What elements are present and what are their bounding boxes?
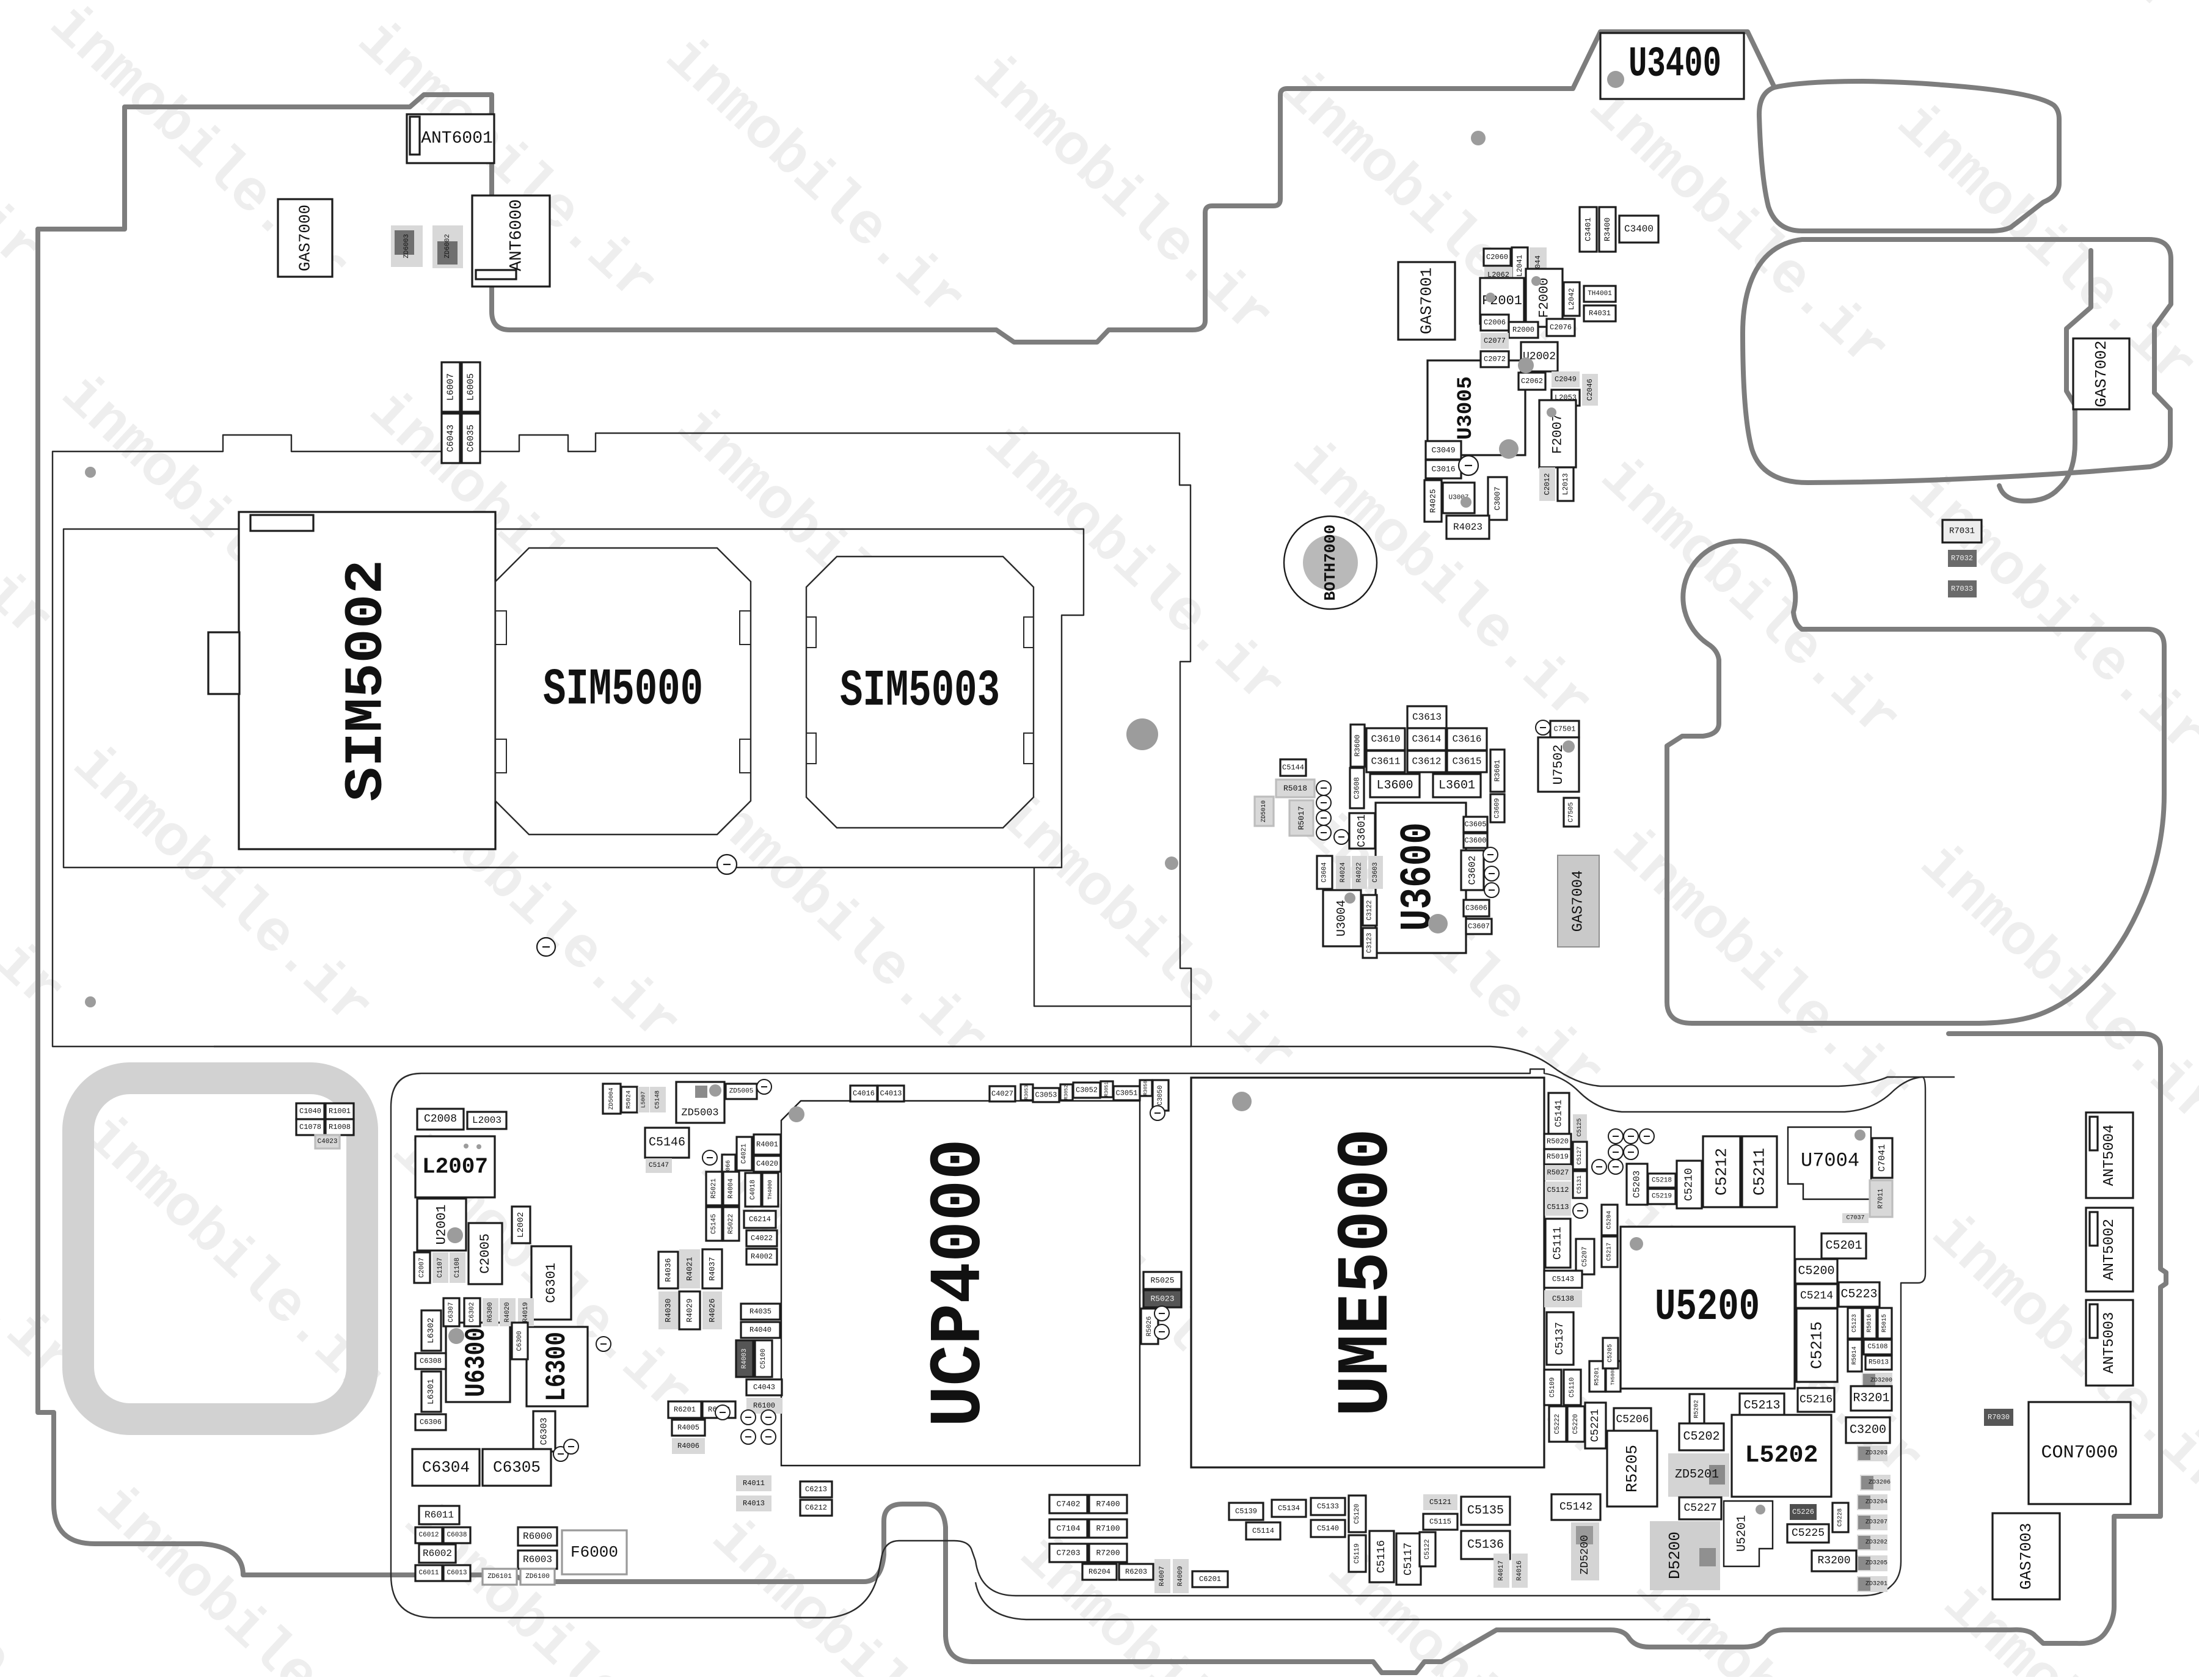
svg-text:C5125: C5125 <box>1577 1118 1583 1136</box>
svg-text:ZD6003: ZD6003 <box>403 234 410 258</box>
svg-text:ANT5002: ANT5002 <box>2101 1219 2118 1280</box>
svg-text:R5021: R5021 <box>710 1178 718 1199</box>
svg-text:C5217: C5217 <box>1606 1243 1613 1261</box>
svg-text:F6000: F6000 <box>571 1543 618 1561</box>
svg-text:C3016: C3016 <box>1431 465 1455 474</box>
svg-text:C5115: C5115 <box>1429 1517 1451 1526</box>
svg-text:GAS7000: GAS7000 <box>296 205 315 271</box>
svg-text:C3609: C3609 <box>1494 798 1501 818</box>
svg-text:ANT5004: ANT5004 <box>2101 1125 2118 1186</box>
svg-text:R4001: R4001 <box>756 1141 778 1149</box>
svg-text:SIM5003: SIM5003 <box>840 663 1000 721</box>
svg-text:C3050: C3050 <box>1157 1085 1164 1105</box>
svg-text:C5138: C5138 <box>1552 1295 1574 1303</box>
svg-text:R5013: R5013 <box>1869 1359 1889 1367</box>
svg-text:R4005: R4005 <box>677 1423 699 1432</box>
svg-text:R4022: R4022 <box>1356 862 1363 882</box>
svg-text:L2003: L2003 <box>472 1115 501 1126</box>
svg-text:R3200: R3200 <box>1817 1555 1850 1567</box>
svg-text:L6300: L6300 <box>541 1332 573 1401</box>
svg-text:U6300: U6300 <box>461 1328 492 1397</box>
svg-text:R4026: R4026 <box>708 1298 717 1322</box>
svg-text:ZD5004: ZD5004 <box>608 1087 615 1109</box>
svg-text:C4027: C4027 <box>991 1090 1013 1098</box>
svg-text:GAS7003: GAS7003 <box>2017 1523 2035 1590</box>
svg-text:C3052: C3052 <box>1076 1086 1098 1095</box>
svg-text:ZD5200: ZD5200 <box>1579 1535 1591 1575</box>
svg-text:R7031: R7031 <box>1949 527 1975 536</box>
svg-text:U3400: U3400 <box>1628 41 1721 89</box>
svg-text:C3601: C3601 <box>1356 814 1368 847</box>
svg-text:R4002: R4002 <box>751 1252 773 1261</box>
svg-text:C5113: C5113 <box>1547 1203 1569 1211</box>
svg-text:C3616: C3616 <box>1452 734 1481 745</box>
svg-text:C5223: C5223 <box>1840 1288 1877 1302</box>
svg-text:C3612: C3612 <box>1412 756 1441 767</box>
svg-text:C5201: C5201 <box>1825 1239 1862 1253</box>
svg-text:C5116: C5116 <box>1376 1540 1388 1573</box>
svg-text:C3614: C3614 <box>1412 734 1441 745</box>
svg-text:C5112: C5112 <box>1547 1186 1569 1194</box>
svg-text:C7041: C7041 <box>1877 1144 1887 1172</box>
svg-text:C4013: C4013 <box>880 1089 902 1098</box>
svg-text:C3400: C3400 <box>1624 224 1654 235</box>
svg-text:C6201: C6201 <box>1199 1575 1221 1583</box>
svg-text:C5119: C5119 <box>1354 1543 1361 1563</box>
svg-text:R1001: R1001 <box>329 1107 351 1116</box>
svg-text:SIM5002: SIM5002 <box>337 560 398 802</box>
svg-text:C5139: C5139 <box>1235 1507 1257 1516</box>
svg-text:C3611: C3611 <box>1371 756 1400 767</box>
svg-text:C4018: C4018 <box>749 1180 757 1200</box>
svg-text:C2049: C2049 <box>1555 375 1577 384</box>
svg-text:C6214: C6214 <box>749 1215 771 1224</box>
svg-text:R4019: R4019 <box>522 1302 530 1322</box>
svg-text:R4029: R4029 <box>685 1298 695 1322</box>
svg-text:U2001: U2001 <box>434 1204 450 1244</box>
svg-text:C2046: C2046 <box>1586 379 1594 401</box>
svg-text:R7400: R7400 <box>1096 1500 1120 1509</box>
svg-text:C3053: C3053 <box>1035 1091 1057 1100</box>
svg-text:R3400: R3400 <box>1603 217 1612 241</box>
svg-text:C3608: C3608 <box>1353 777 1362 799</box>
svg-text:R7030: R7030 <box>1988 1413 2010 1422</box>
svg-text:C7203: C7203 <box>1056 1549 1080 1558</box>
svg-text:C5142: C5142 <box>1559 1501 1592 1513</box>
svg-text:C3049: C3049 <box>1431 446 1455 455</box>
svg-text:R4007: R4007 <box>1159 1566 1166 1586</box>
svg-text:C5100: C5100 <box>760 1348 767 1368</box>
svg-text:C5120: C5120 <box>1354 1503 1361 1524</box>
svg-text:ZD5003: ZD5003 <box>681 1108 718 1119</box>
svg-text:ANT6001: ANT6001 <box>421 130 493 148</box>
svg-text:R4035: R4035 <box>749 1307 771 1316</box>
svg-text:C5219: C5219 <box>1652 1193 1672 1200</box>
svg-text:C6013: C6013 <box>447 1569 467 1577</box>
svg-text:C7037: C7037 <box>1846 1215 1864 1222</box>
svg-text:C5146: C5146 <box>649 1136 685 1150</box>
svg-text:C4023: C4023 <box>317 1138 337 1145</box>
svg-text:C5200: C5200 <box>1798 1265 1834 1279</box>
svg-text:ZD5005: ZD5005 <box>729 1088 754 1095</box>
svg-text:C6011: C6011 <box>418 1569 439 1577</box>
svg-text:C5222: C5222 <box>1554 1414 1561 1434</box>
svg-text:ANT5003: ANT5003 <box>2101 1312 2118 1374</box>
svg-text:C5111: C5111 <box>1552 1227 1564 1260</box>
svg-text:C5203: C5203 <box>1632 1171 1643 1198</box>
svg-text:L2042: L2042 <box>1567 288 1576 310</box>
svg-text:C1108: C1108 <box>454 1257 461 1277</box>
svg-text:C3603: C3603 <box>1372 862 1379 882</box>
svg-text:C3613: C3613 <box>1412 712 1442 723</box>
svg-text:C7104: C7104 <box>1056 1524 1080 1533</box>
svg-text:R3052: R3052 <box>1064 1085 1070 1100</box>
svg-text:C5134: C5134 <box>1278 1504 1300 1513</box>
svg-text:C5227: C5227 <box>1683 1502 1716 1514</box>
svg-text:R4021: R4021 <box>685 1257 695 1280</box>
svg-text:C5136: C5136 <box>1467 1538 1504 1552</box>
svg-text:R4023: R4023 <box>1453 522 1482 533</box>
svg-text:R6204: R6204 <box>1089 1568 1110 1576</box>
svg-text:C3122: C3122 <box>1366 900 1374 920</box>
svg-text:C6043: C6043 <box>446 425 456 452</box>
svg-text:C2062: C2062 <box>1521 377 1543 385</box>
svg-text:L2002: L2002 <box>516 1212 526 1238</box>
svg-text:C5220: C5220 <box>1572 1414 1580 1434</box>
svg-text:R6203: R6203 <box>1125 1568 1147 1576</box>
svg-text:U5200: U5200 <box>1655 1282 1760 1332</box>
svg-text:R5201: R5201 <box>1594 1367 1601 1386</box>
svg-text:C3401: C3401 <box>1584 217 1593 241</box>
svg-text:L2041: L2041 <box>1515 255 1524 277</box>
svg-text:C4021: C4021 <box>741 1144 748 1164</box>
svg-text:R5025: R5025 <box>1150 1276 1174 1285</box>
svg-text:C4043: C4043 <box>753 1383 775 1392</box>
svg-text:C3200: C3200 <box>1850 1423 1886 1437</box>
svg-text:ZD3207: ZD3207 <box>1865 1519 1887 1526</box>
svg-text:C5133: C5133 <box>1317 1502 1339 1511</box>
svg-text:L6301: L6301 <box>426 1379 436 1404</box>
svg-text:C1107: C1107 <box>437 1257 444 1277</box>
svg-text:ZD3206: ZD3206 <box>1869 1480 1891 1486</box>
svg-text:C5215: C5215 <box>1808 1321 1826 1369</box>
svg-text:R5202: R5202 <box>1694 1400 1701 1418</box>
svg-text:R7032: R7032 <box>1951 554 1973 563</box>
svg-text:C5141: C5141 <box>1554 1100 1564 1127</box>
svg-text:GAS7001: GAS7001 <box>1418 268 1436 334</box>
svg-text:R5023: R5023 <box>1150 1295 1174 1304</box>
svg-text:C6012: C6012 <box>418 1532 439 1539</box>
svg-text:U3004: U3004 <box>1335 900 1349 937</box>
svg-text:R4025: R4025 <box>1429 489 1438 513</box>
svg-text:C3604: C3604 <box>1321 862 1329 882</box>
svg-text:F2007: F2007 <box>1550 414 1566 454</box>
svg-text:R4036: R4036 <box>664 1258 673 1282</box>
svg-text:R6002: R6002 <box>423 1548 452 1559</box>
svg-text:C5228: C5228 <box>1837 1508 1844 1527</box>
svg-text:C4016: C4016 <box>853 1089 875 1098</box>
svg-text:C5205: C5205 <box>1607 1344 1614 1362</box>
svg-text:C6302: C6302 <box>469 1302 476 1322</box>
svg-text:C5207: C5207 <box>1581 1246 1589 1266</box>
svg-text:L2013: L2013 <box>1561 473 1570 495</box>
svg-text:R6011: R6011 <box>425 1510 454 1521</box>
svg-text:U7502: U7502 <box>1551 744 1566 784</box>
svg-text:R7033: R7033 <box>1951 585 1973 593</box>
svg-text:R2000: R2000 <box>1512 326 1534 334</box>
svg-text:ANT6000: ANT6000 <box>508 199 527 271</box>
svg-text:R4030: R4030 <box>664 1298 673 1322</box>
svg-text:C5226: C5226 <box>1792 1508 1814 1516</box>
svg-text:R7100: R7100 <box>1096 1524 1120 1533</box>
svg-text:R4040: R4040 <box>749 1326 771 1334</box>
svg-text:R6100: R6100 <box>753 1401 775 1410</box>
svg-text:C1078: C1078 <box>299 1123 321 1131</box>
svg-text:R4017: R4017 <box>1498 1560 1505 1580</box>
svg-text:C2006: C2006 <box>1484 318 1506 327</box>
svg-text:R4037: R4037 <box>708 1257 717 1280</box>
svg-text:R6000: R6000 <box>523 1531 552 1542</box>
svg-text:C5212: C5212 <box>1713 1148 1731 1196</box>
svg-text:C5109: C5109 <box>1549 1377 1556 1397</box>
svg-text:R5016: R5016 <box>1867 1314 1873 1332</box>
svg-text:C5135: C5135 <box>1467 1504 1504 1518</box>
svg-text:C5206: C5206 <box>1616 1414 1649 1426</box>
svg-text:C5225: C5225 <box>1792 1527 1825 1539</box>
svg-text:R5205: R5205 <box>1623 1445 1641 1492</box>
svg-text:C4020: C4020 <box>756 1160 778 1168</box>
svg-text:C5214: C5214 <box>1800 1290 1833 1302</box>
svg-text:C5216: C5216 <box>1800 1394 1832 1406</box>
svg-text:L6302: L6302 <box>426 1318 436 1343</box>
svg-text:R3601: R3601 <box>1493 759 1502 781</box>
svg-text:ZD3201: ZD3201 <box>1865 1581 1887 1588</box>
svg-text:C5210: C5210 <box>1683 1168 1696 1201</box>
svg-text:C6304: C6304 <box>422 1458 470 1477</box>
svg-text:C3606: C3606 <box>1465 904 1487 913</box>
svg-text:BOTH7000: BOTH7000 <box>1321 525 1340 601</box>
svg-text:GAS7004: GAS7004 <box>1570 871 1587 932</box>
svg-text:C5127: C5127 <box>1577 1146 1583 1164</box>
svg-text:C3123: C3123 <box>1366 933 1374 953</box>
svg-text:C6306: C6306 <box>420 1418 442 1426</box>
svg-text:U3005: U3005 <box>1454 376 1478 440</box>
svg-text:R6201: R6201 <box>674 1406 696 1414</box>
svg-text:R5014: R5014 <box>1851 1346 1858 1365</box>
svg-text:TH5000: TH5000 <box>1611 1367 1616 1385</box>
svg-text:C5137: C5137 <box>1554 1322 1566 1355</box>
svg-text:TH4001: TH4001 <box>1588 290 1612 298</box>
svg-text:R7200: R7200 <box>1096 1549 1120 1558</box>
svg-text:ZD5010: ZD5010 <box>1261 800 1267 822</box>
svg-text:C3007: C3007 <box>1493 486 1502 510</box>
svg-text:R5022: R5022 <box>728 1214 735 1234</box>
svg-text:D5200: D5200 <box>1666 1532 1684 1579</box>
svg-text:CON7000: CON7000 <box>2041 1443 2118 1464</box>
svg-text:R6003: R6003 <box>523 1554 552 1565</box>
svg-text:R4031: R4031 <box>1589 309 1611 318</box>
svg-text:U5201: U5201 <box>1735 1515 1749 1552</box>
svg-text:ZD6101: ZD6101 <box>487 1573 512 1580</box>
svg-text:C6303: C6303 <box>539 1417 550 1445</box>
svg-text:C6038: C6038 <box>447 1532 467 1539</box>
svg-text:R3600: R3600 <box>1354 734 1362 756</box>
svg-text:C5140: C5140 <box>1317 1524 1339 1533</box>
svg-text:ZD3202: ZD3202 <box>1865 1539 1887 1546</box>
svg-text:R4013: R4013 <box>743 1499 765 1508</box>
svg-text:C5213: C5213 <box>1743 1399 1780 1413</box>
svg-text:R5024: R5024 <box>626 1090 633 1109</box>
svg-text:R5018: R5018 <box>1283 784 1307 793</box>
svg-text:R3050: R3050 <box>1143 1081 1149 1095</box>
svg-text:R3201: R3201 <box>1853 1392 1889 1406</box>
svg-text:L3600: L3600 <box>1376 779 1413 793</box>
svg-text:C5117: C5117 <box>1402 1543 1415 1576</box>
svg-text:C5204: C5204 <box>1606 1211 1613 1229</box>
svg-text:C2008: C2008 <box>424 1113 457 1125</box>
svg-text:L2007: L2007 <box>422 1155 488 1180</box>
svg-text:ZD3205: ZD3205 <box>1865 1560 1887 1567</box>
svg-text:C5144: C5144 <box>1282 764 1304 772</box>
svg-text:R4009: R4009 <box>1177 1566 1184 1586</box>
svg-text:L5007: L5007 <box>641 1091 647 1108</box>
svg-text:C6307: C6307 <box>448 1302 455 1322</box>
svg-text:C5218: C5218 <box>1652 1177 1672 1185</box>
svg-text:R4020: R4020 <box>504 1302 511 1322</box>
svg-text:L6007: L6007 <box>446 373 456 401</box>
svg-text:C6213: C6213 <box>805 1485 827 1494</box>
svg-text:R5020: R5020 <box>1547 1138 1569 1146</box>
svg-text:R5019: R5019 <box>1547 1153 1569 1161</box>
svg-text:L3601: L3601 <box>1439 779 1475 793</box>
svg-text:R5017: R5017 <box>1297 806 1306 830</box>
svg-text:ZD3204: ZD3204 <box>1865 1499 1887 1506</box>
svg-text:C3607: C3607 <box>1468 922 1490 931</box>
svg-text:R5015: R5015 <box>1881 1314 1888 1332</box>
svg-text:C5143: C5143 <box>1552 1275 1574 1284</box>
svg-text:ZD3203: ZD3203 <box>1865 1450 1887 1457</box>
svg-text:C3615: C3615 <box>1452 756 1481 767</box>
svg-text:C6305: C6305 <box>493 1458 541 1477</box>
svg-text:C7501: C7501 <box>1553 725 1575 734</box>
svg-text:C5131: C5131 <box>1577 1175 1583 1194</box>
svg-text:C6035: C6035 <box>466 425 476 452</box>
svg-text:C6301: C6301 <box>544 1263 559 1303</box>
svg-text:C3602: C3602 <box>1467 855 1478 885</box>
svg-text:C3600: C3600 <box>1464 836 1486 845</box>
svg-text:C7402: C7402 <box>1056 1500 1080 1509</box>
svg-text:R3053: R3053 <box>1024 1085 1030 1100</box>
svg-text:C3051: C3051 <box>1115 1089 1137 1098</box>
svg-text:C5202: C5202 <box>1683 1430 1719 1444</box>
svg-text:C2076: C2076 <box>1550 323 1572 332</box>
svg-text:GAS7002: GAS7002 <box>2092 340 2110 407</box>
svg-text:C6212: C6212 <box>805 1503 827 1512</box>
svg-text:C5147: C5147 <box>649 1162 669 1169</box>
svg-text:C5114: C5114 <box>1252 1527 1274 1535</box>
svg-text:C5123: C5123 <box>1851 1314 1858 1332</box>
svg-text:C5121: C5121 <box>1429 1498 1451 1507</box>
svg-text:ZD3200: ZD3200 <box>1870 1378 1892 1384</box>
svg-text:ZD5201: ZD5201 <box>1675 1468 1719 1482</box>
svg-text:C3610: C3610 <box>1371 734 1400 745</box>
svg-text:SIM5000: SIM5000 <box>543 662 703 720</box>
svg-text:C2012: C2012 <box>1543 473 1552 495</box>
svg-text:R4011: R4011 <box>743 1479 765 1488</box>
svg-text:C1040: C1040 <box>299 1107 321 1116</box>
svg-text:R5027: R5027 <box>1547 1169 1569 1177</box>
svg-text:UCP4000: UCP4000 <box>919 1139 1002 1427</box>
svg-text:C4022: C4022 <box>751 1234 773 1243</box>
svg-text:R7011: R7011 <box>1878 1188 1885 1208</box>
svg-text:C5145: C5145 <box>710 1214 718 1234</box>
svg-text:U7004: U7004 <box>1801 1150 1859 1172</box>
svg-text:R4003: R4003 <box>741 1348 748 1368</box>
svg-text:C2005: C2005 <box>478 1233 493 1274</box>
svg-text:C5122: C5122 <box>1424 1539 1431 1559</box>
svg-text:C2072: C2072 <box>1484 355 1506 363</box>
svg-text:C2077: C2077 <box>1484 337 1506 345</box>
svg-text:C2060: C2060 <box>1486 253 1508 261</box>
svg-text:R1008: R1008 <box>329 1123 351 1131</box>
svg-text:C6300: C6300 <box>516 1331 523 1351</box>
svg-text:C3605: C3605 <box>1464 820 1486 829</box>
svg-text:C7505: C7505 <box>1568 802 1575 822</box>
svg-text:C5221: C5221 <box>1589 1409 1602 1442</box>
svg-text:L5202: L5202 <box>1745 1442 1818 1470</box>
svg-text:TH4000: TH4000 <box>767 1180 773 1199</box>
svg-text:C5110: C5110 <box>1569 1377 1576 1397</box>
svg-text:C5211: C5211 <box>1751 1148 1769 1196</box>
svg-text:C5108: C5108 <box>1867 1343 1887 1351</box>
svg-text:C2007: C2007 <box>418 1257 426 1277</box>
svg-text:R5026: R5026 <box>1146 1316 1153 1336</box>
svg-text:C5148: C5148 <box>655 1090 662 1109</box>
svg-text:R4016: R4016 <box>1516 1560 1523 1580</box>
svg-text:R4004: R4004 <box>728 1178 735 1199</box>
svg-text:ZD6100: ZD6100 <box>525 1573 550 1580</box>
svg-text:R4006: R4006 <box>677 1442 699 1450</box>
svg-text:R3051: R3051 <box>1104 1082 1110 1097</box>
svg-text:R4024: R4024 <box>1340 862 1347 882</box>
svg-text:UME5000: UME5000 <box>1326 1128 1409 1417</box>
svg-text:C6308: C6308 <box>420 1357 442 1365</box>
svg-text:R6300: R6300 <box>487 1302 494 1322</box>
svg-text:L6005: L6005 <box>466 373 476 401</box>
svg-text:ZD6002: ZD6002 <box>444 234 451 258</box>
